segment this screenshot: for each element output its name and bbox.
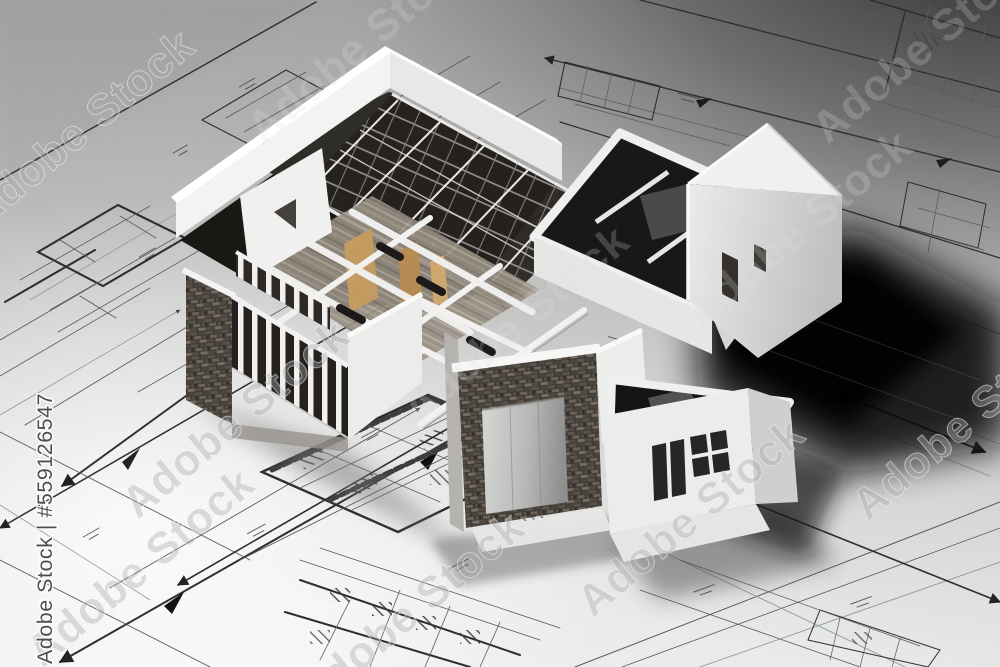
garage-door [482,398,568,514]
brick-corner-pier [186,272,232,424]
photo-canvas: Adobe Stock Adobe Stock Adobe Stock Adob… [0,0,1000,667]
